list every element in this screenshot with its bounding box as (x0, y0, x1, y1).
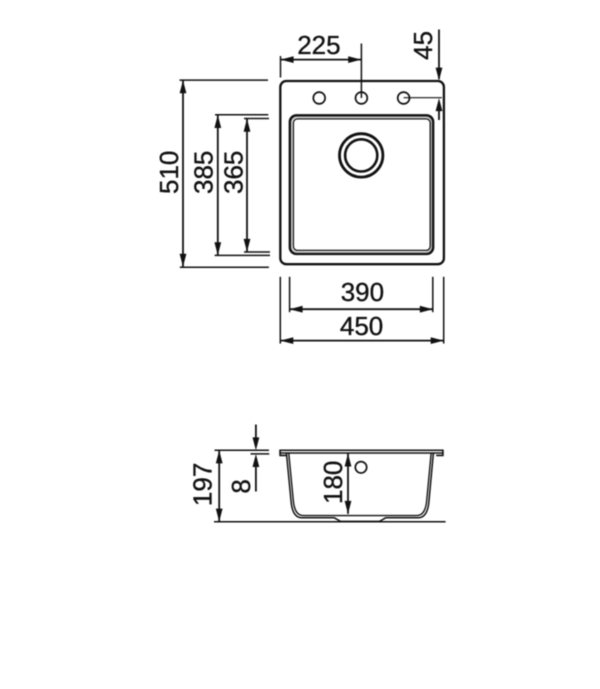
svg-text:197: 197 (187, 463, 217, 506)
svg-text:385: 385 (189, 151, 219, 194)
svg-text:390: 390 (341, 277, 384, 307)
svg-text:225: 225 (297, 30, 340, 60)
svg-text:180: 180 (318, 461, 348, 504)
svg-text:365: 365 (218, 151, 248, 194)
svg-text:510: 510 (154, 151, 184, 194)
svg-text:450: 450 (340, 311, 383, 341)
svg-text:8: 8 (226, 479, 256, 493)
svg-text:45: 45 (408, 31, 438, 60)
